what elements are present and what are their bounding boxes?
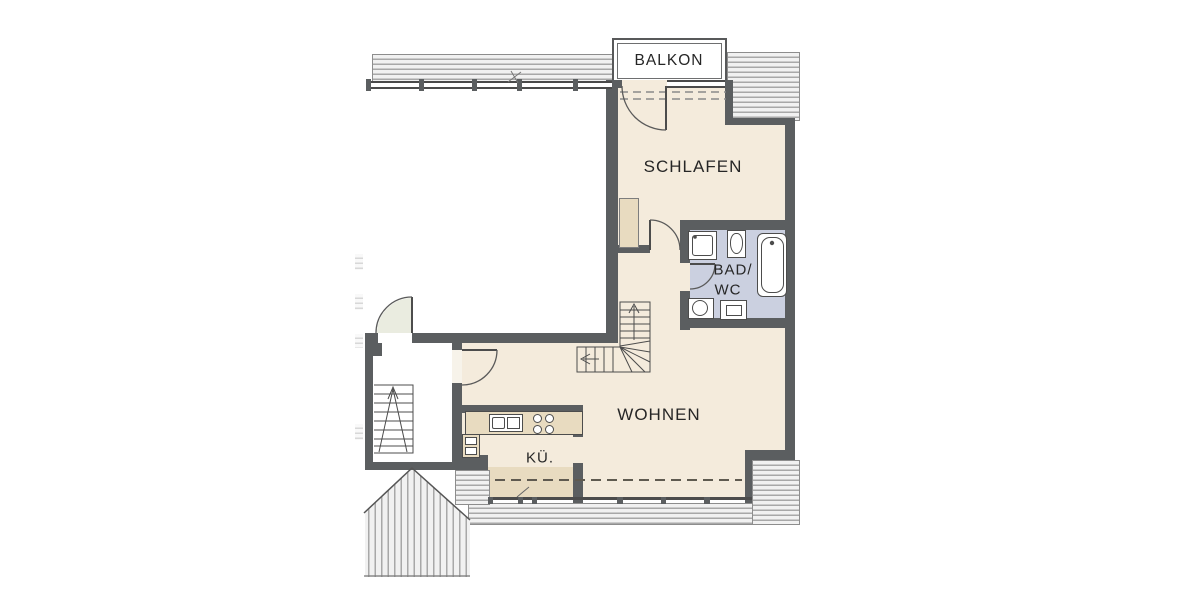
room-label-living: WOHNEN — [617, 405, 700, 425]
window-tick — [517, 487, 529, 497]
drain-dots — [693, 235, 774, 245]
room-label-bath-1: BAD/ — [713, 262, 752, 279]
entrance-door-arc — [376, 297, 412, 333]
room-label-bath-2: WC — [715, 282, 742, 299]
roof-slope-dashed-lines — [620, 92, 726, 99]
window-tick — [508, 71, 521, 83]
linework-overlay — [0, 0, 1200, 600]
interior-door-arc — [462, 350, 497, 385]
room-label-balcony: BALKON — [635, 52, 704, 70]
room-label-bedroom: SCHLAFEN — [644, 157, 743, 177]
stair-direction-arrow — [581, 354, 599, 364]
bathroom-door-arc — [690, 264, 715, 289]
winder-staircase — [577, 302, 650, 372]
stair-up-arrow — [629, 304, 639, 340]
gable-hip-lines — [364, 468, 470, 520]
bedroom-door-arc — [650, 220, 680, 250]
floor-plan: BALKON SCHLAFEN BAD/ WC WOHNEN KÜ. — [0, 0, 1200, 600]
building-staircase — [374, 385, 413, 453]
room-label-kitchen: KÜ. — [526, 450, 554, 467]
